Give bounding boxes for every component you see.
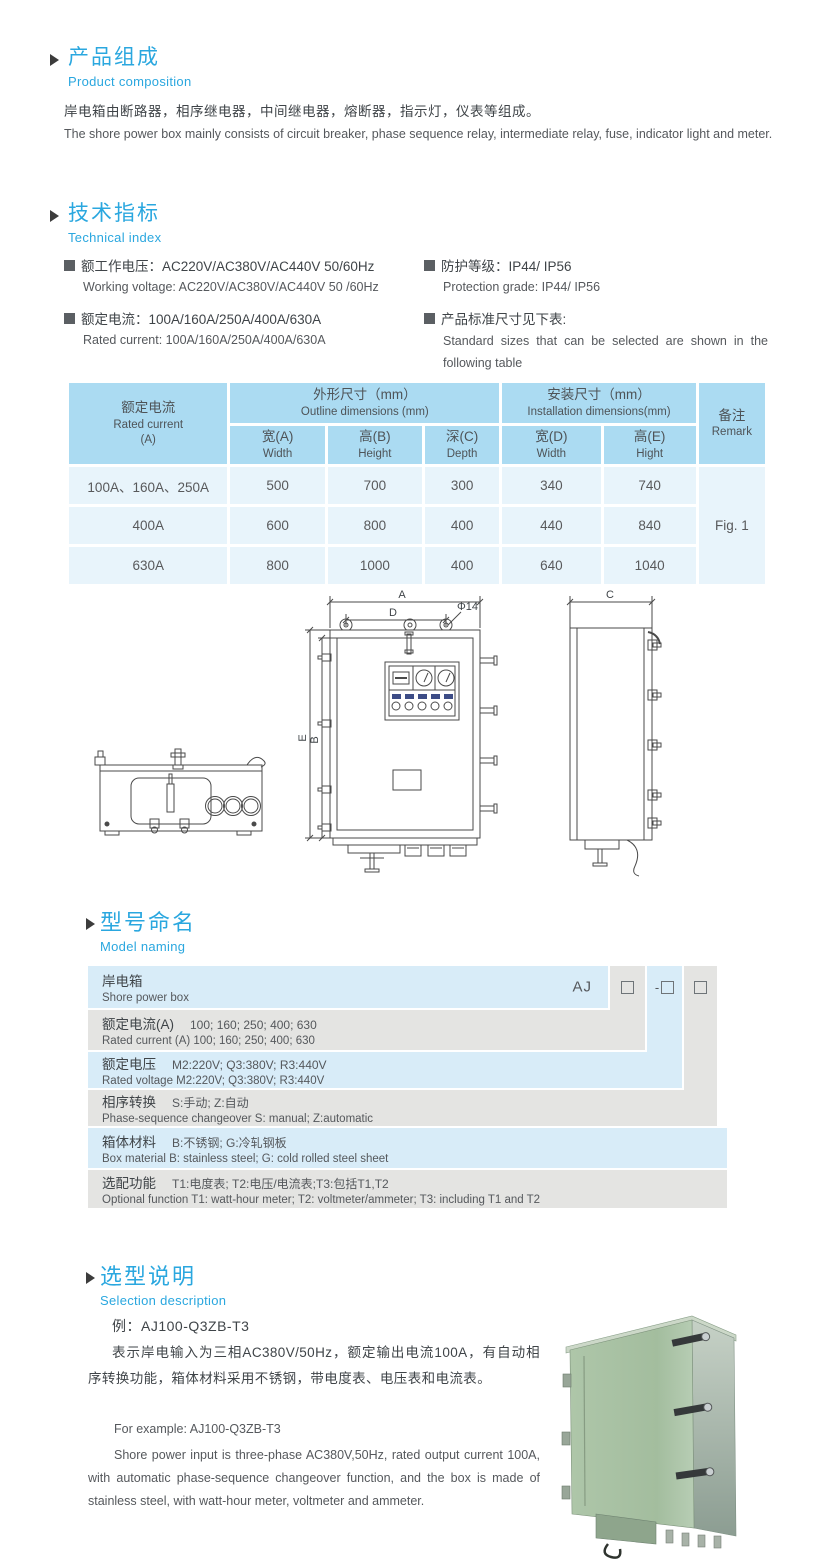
naming-row-cn: 岸电箱 [102,970,608,990]
naming-row-en: Optional function T1: watt-hour meter; T… [102,1194,727,1206]
naming-label-cn: 相序转换 [102,1095,156,1110]
model-naming-diagram: - 岸电箱 Shore power box AJ 额定电流(A)100; 160… [88,966,738,1210]
table-row: 100A、160A、250A 500 700 300 340 740 Fig. … [69,467,765,504]
spec-working-voltage-en: Working voltage: AC220V/AC380V/AC440V 50… [83,280,379,294]
header-height-b: 高(B) Height [328,426,422,464]
cell-d-1: 400 [425,507,499,544]
naming-value-cn: M2:220V; Q3:380V; R3:440V [172,1058,327,1072]
dim-label-a: A [398,589,406,601]
naming-value-cn: B:不锈钢; G:冷轧钢板 [172,1136,287,1150]
header-remark: 备注 Remark [699,383,765,464]
naming-row-shore-power-box: 岸电箱 Shore power box AJ [88,966,608,1008]
product-composition-body-cn: 岸电箱由断路器，相序继电器，中间继电器，熔断器，指示灯，仪表等组成。 [64,100,540,120]
header-depth-c-cn: 深(C) [426,428,498,446]
shore-power-box-photo [562,1316,736,1558]
selection-description-titles: 选型说明 Selection description [100,1264,226,1308]
cell-ih-1: 840 [604,507,696,544]
naming-row-en: Shore power box [102,992,608,1004]
naming-row-optional-function: 选配功能T1:电度表; T2:电压/电流表;T3:包括T1,T2 Optiona… [88,1170,727,1208]
dim-label-dia: Φ14 [457,601,478,613]
side-bolts-right [480,656,497,813]
naming-row-en: Box material B: stainless steel; G: cold… [102,1153,727,1165]
selection-example-cn: 例：AJ100-Q3ZB-T3 [112,1316,249,1336]
header-installation-en: Installation dimensions(mm) [503,405,695,420]
spec-rated-current-cn-text: 额定电流：100A/160A/250A/400A/630A [81,308,321,328]
code-box-icon [694,981,707,994]
header-height-b-cn: 高(B) [329,428,421,446]
selection-body-cn: 表示岸电输入为三相AC380V/50Hz，额定输出电流100A，有自动相序转换功… [88,1340,540,1392]
spec-standard-sizes-cn: 产品标准尺寸见下表: [424,308,566,328]
header-width-d-cn: 宽(D) [503,428,599,446]
technical-index-title-cn: 技术指标 [68,202,161,226]
cell-iw-1: 440 [502,507,600,544]
square-bullet-icon [424,260,435,271]
model-naming-heading: 型号命名 Model naming [86,910,196,954]
technical-index-titles: 技术指标 Technical index [68,202,161,245]
header-rated-current-cn: 额定电流 [70,399,226,417]
cell-h-1: 800 [328,507,422,544]
selection-example-en: For example: AJ100-Q3ZB-T3 [114,1422,281,1436]
header-width-a: 宽(A) Width [230,426,324,464]
size-table: 额定电流 Rated current (A) 外形尺寸（mm） Outline … [66,380,768,587]
spec-working-voltage-cn-text: 额工作电压：AC220V/AC380V/AC440V 50/60Hz [81,255,374,275]
cell-current-0: 100A、160A、250A [69,467,227,504]
product-photo [540,1292,790,1568]
naming-row-rated-current: 额定电流(A)100; 160; 250; 400; 630 Rated cur… [88,1010,645,1050]
header-rated-current-en: Rated current [70,418,226,433]
header-hight-e-en: Hight [605,447,695,462]
header-remark-cn: 备注 [700,407,764,425]
spec-standard-sizes-en: Standard sizes that can be selected are … [443,330,768,374]
selection-title-en: Selection description [100,1293,226,1308]
dim-label-c: C [606,589,614,601]
selection-description-heading: 选型说明 Selection description [86,1264,226,1308]
cell-current-1: 400A [69,507,227,544]
header-height-b-en: Height [329,447,421,462]
header-width-d-en: Width [503,447,599,462]
naming-value-cn: 100; 160; 250; 400; 630 [190,1018,317,1032]
header-width-a-en: Width [231,447,323,462]
header-outline-dimensions: 外形尺寸（mm） Outline dimensions (mm) [230,383,499,423]
naming-row-en: Rated voltage M2:220V; Q3:380V; R3:440V [102,1075,682,1087]
product-composition-titles: 产品组成 Product composition [68,46,191,89]
cell-w-1: 600 [230,507,324,544]
header-hight-e-cn: 高(E) [605,428,695,446]
spec-protection-grade-en: Protection grade: IP44/ IP56 [443,280,600,294]
spec-protection-grade-cn-text: 防护等级：IP44/ IP56 [441,255,572,275]
spec-working-voltage-cn: 额工作电压：AC220V/AC380V/AC440V 50/60Hz [64,255,374,275]
dim-label-b: B [309,736,321,743]
dim-label-d: D [389,607,397,619]
cell-iw-0: 340 [502,467,600,504]
code-dash: - [655,982,659,993]
cell-w-0: 500 [230,467,324,504]
header-remark-en: Remark [700,425,764,440]
model-naming-title-en: Model naming [100,939,196,954]
dim-label-e: E [297,734,309,741]
naming-row-en: Rated current (A) 100; 160; 250; 400; 63… [102,1035,645,1047]
model-naming-titles: 型号命名 Model naming [100,910,196,954]
square-bullet-icon [64,313,75,324]
naming-row-box-material: 箱体材料B:不锈钢; G:冷轧钢板 Box material B: stainl… [88,1128,727,1168]
size-table-header-row-1: 额定电流 Rated current (A) 外形尺寸（mm） Outline … [69,383,765,423]
spec-protection-grade-cn: 防护等级：IP44/ IP56 [424,255,572,275]
selection-body-en: Shore power input is three-phase AC380V,… [88,1444,540,1513]
side-view [567,596,661,876]
selection-title-cn: 选型说明 [100,1264,226,1289]
header-width-a-cn: 宽(A) [231,428,323,446]
header-installation-dimensions: 安装尺寸（mm） Installation dimensions(mm) [502,383,696,423]
section-arrow-icon [50,54,59,66]
naming-value-cn: T1:电度表; T2:电压/电流表;T3:包括T1,T2 [172,1177,389,1191]
catalog-page: 产品组成 Product composition 岸电箱由断路器，相序继电器，中… [0,0,830,1568]
product-composition-title-en: Product composition [68,74,191,89]
cell-ih-0: 740 [604,467,696,504]
spec-rated-current-cn: 额定电流：100A/160A/250A/400A/630A [64,308,321,328]
header-depth-c-en: Depth [426,447,498,462]
technical-drawing: A D Φ14 E B C [65,578,765,893]
header-hight-e: 高(E) Hight [604,426,696,464]
model-prefix: AJ [572,979,592,996]
product-composition-heading: 产品组成 Product composition [50,46,191,89]
naming-value-cn: S:手动; Z:自动 [172,1096,249,1110]
naming-row-phase-sequence: 相序转换S:手动; Z:自动 Phase-sequence changeover… [88,1090,716,1126]
header-width-d: 宽(D) Width [502,426,600,464]
model-naming-title-cn: 型号命名 [100,910,196,935]
section-arrow-icon [50,210,59,222]
naming-row-rated-voltage: 额定电压M2:220V; Q3:380V; R3:440V Rated volt… [88,1052,682,1088]
spec-standard-sizes-cn-text: 产品标准尺寸见下表: [441,308,566,328]
spec-rated-current-en: Rated current: 100A/160A/250A/400A/630A [83,333,326,347]
header-rated-current-unit: (A) [70,433,226,448]
naming-label-cn: 额定电压 [102,1057,156,1072]
technical-index-heading: 技术指标 Technical index [50,202,161,245]
product-composition-body-en: The shore power box mainly consists of c… [64,127,772,141]
header-outline-en: Outline dimensions (mm) [231,405,498,420]
naming-label-cn: 额定电流(A) [102,1017,174,1032]
code-box-icon [621,981,634,994]
bottom-view [95,749,265,835]
header-installation-cn: 安装尺寸（mm） [503,386,695,404]
header-outline-cn: 外形尺寸（mm） [231,386,498,404]
code-box-icon [661,981,674,994]
table-row: 400A 600 800 400 440 840 [69,507,765,544]
header-depth-c: 深(C) Depth [425,426,499,464]
header-rated-current: 额定电流 Rated current (A) [69,383,227,464]
section-arrow-icon [86,918,95,930]
cell-remark: Fig. 1 [699,467,765,584]
square-bullet-icon [64,260,75,271]
square-bullet-icon [424,313,435,324]
cell-d-0: 300 [425,467,499,504]
cell-h-0: 700 [328,467,422,504]
naming-label-cn: 选配功能 [102,1176,156,1191]
section-arrow-icon [86,1272,95,1284]
product-composition-title-cn: 产品组成 [68,46,191,70]
naming-label-cn: 箱体材料 [102,1135,156,1150]
naming-row-en: Phase-sequence changeover S: manual; Z:a… [102,1113,716,1125]
technical-index-title-en: Technical index [68,230,161,245]
front-view [305,596,497,872]
